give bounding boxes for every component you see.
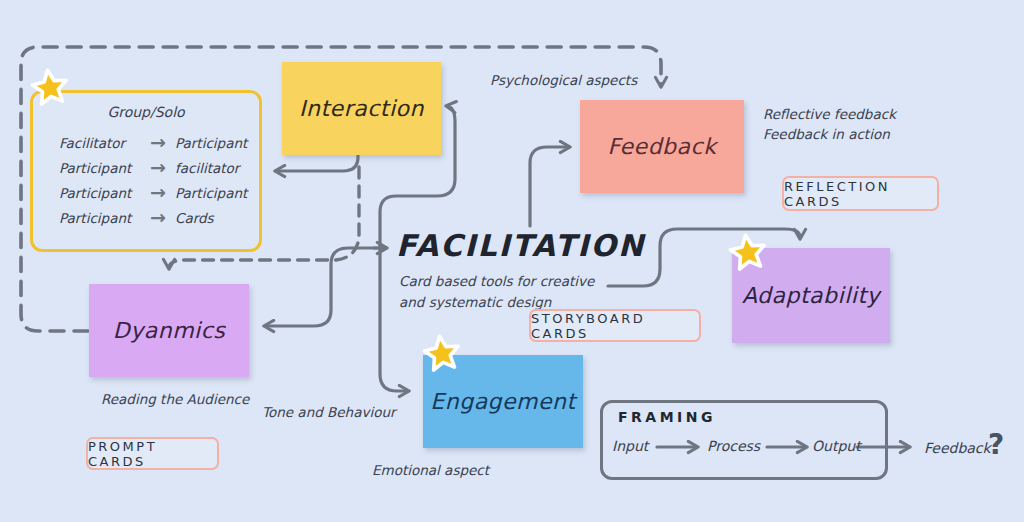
annotation-reading-audience: Reading the Audience <box>101 391 249 407</box>
annotation-feedback-in-action: Feedback in action <box>763 126 890 142</box>
row-to-label: Cards <box>175 210 214 226</box>
star-icon <box>26 64 73 111</box>
note-interaction-label: Interaction <box>299 96 424 121</box>
right-arrow-icon: → <box>141 133 175 152</box>
annotation-tone-behaviour: Tone and Behaviour <box>262 404 396 420</box>
note-interaction[interactable]: Interaction <box>282 62 441 155</box>
note-feedback[interactable]: Feedback <box>580 100 744 193</box>
row-from-label: Participant <box>59 185 141 201</box>
right-arrow-icon: → <box>141 208 175 227</box>
note-adaptability-label: Adaptability <box>742 283 880 308</box>
framing-title: FRAMING <box>618 409 716 425</box>
annotation-psychological: Psychological aspects <box>490 72 637 88</box>
annotation-reflective-feedback: Reflective feedback <box>763 106 896 122</box>
storyboard-cards-label: STORYBOARD CARDS <box>531 311 699 341</box>
right-arrow-icon: → <box>141 183 175 202</box>
note-dynamics[interactable]: Dyanmics <box>89 284 249 377</box>
row-from-label: Participant <box>59 210 141 226</box>
framing-step-process: Process <box>707 438 760 454</box>
row-to-label: facilitator <box>175 160 239 176</box>
row-from-label: Facilitator <box>59 135 141 151</box>
group-solo-row: Participant → Cards <box>59 205 259 230</box>
row-to-label: Participant <box>175 135 247 151</box>
row-to-label: Participant <box>175 185 247 201</box>
row-from-label: Participant <box>59 160 141 176</box>
page-title: FACILITATION <box>396 228 645 263</box>
connector-facilitation-engagement <box>380 246 408 391</box>
note-feedback-label: Feedback <box>608 134 717 159</box>
group-solo-row: Facilitator → Participant <box>59 130 259 155</box>
framing-step-input: Input <box>612 438 648 454</box>
note-dynamics-label: Dyanmics <box>113 318 226 343</box>
connector-facilitation-dynamics <box>265 248 380 326</box>
star-icon <box>724 229 771 276</box>
connector-interaction-groupsolo <box>276 154 358 171</box>
reflection-cards-tag[interactable]: REFLECTION CARDS <box>782 176 939 211</box>
framing-step-feedback: Feedback <box>924 440 991 456</box>
reflection-cards-label: REFLECTION CARDS <box>784 179 937 209</box>
right-arrow-icon: → <box>141 158 175 177</box>
annotation-emotional-aspect: Emotional aspect <box>372 462 489 478</box>
group-solo-row: Participant → facilitator <box>59 155 259 180</box>
title-subtitle-line2: and systematic design <box>399 294 551 310</box>
storyboard-cards-tag[interactable]: STORYBOARD CARDS <box>529 309 701 342</box>
prompt-cards-tag[interactable]: PROMPT CARDS <box>86 437 219 470</box>
prompt-cards-label: PROMPT CARDS <box>88 439 217 469</box>
group-solo-box[interactable]: Group/Solo Facilitator → Participant Par… <box>30 90 262 252</box>
group-solo-row: Participant → Participant <box>59 180 259 205</box>
group-solo-rows: Facilitator → Participant Participant → … <box>59 130 259 230</box>
framing-step-output: Output <box>812 438 861 454</box>
whiteboard-canvas: Interaction Feedback Dyanmics Adaptabili… <box>0 0 1024 522</box>
title-subtitle-line1: Card based tools for creative <box>399 273 594 289</box>
question-mark-icon: ? <box>988 428 1004 461</box>
note-engagement-label: Engagement <box>430 389 575 414</box>
connector-facilitation-feedback <box>530 147 569 226</box>
star-icon <box>418 330 465 377</box>
